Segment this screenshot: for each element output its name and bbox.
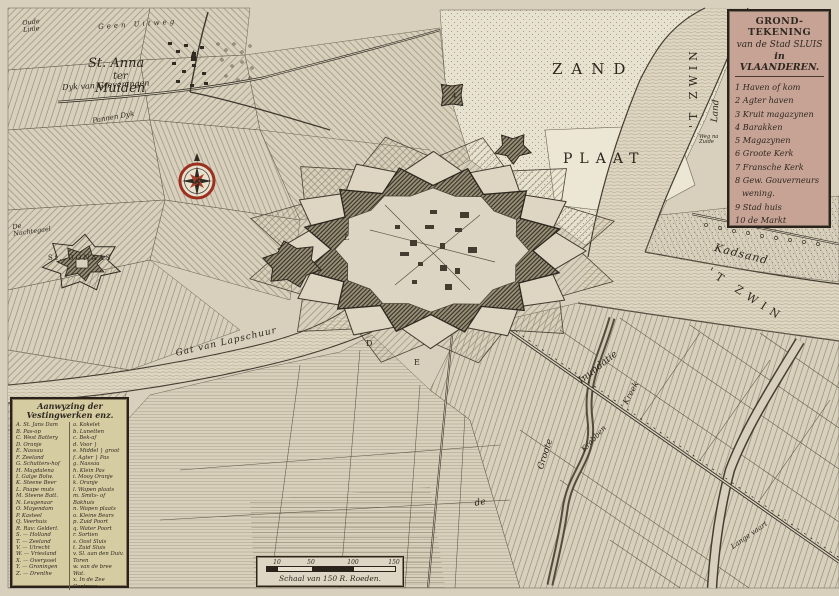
scale-caption: Schaal van 150 R. Roeden.	[263, 574, 397, 583]
legend-right-column: a. Kokeletb. Lunettenc. Bek-afd. Voor }e…	[69, 422, 124, 590]
map-title-line2: van de Stad SLUIS	[735, 40, 824, 50]
legend-entry: x. In de Zee Contresc.	[73, 577, 124, 590]
legend-entry: v. Sl. aan den Duiv. Toren	[73, 551, 124, 564]
legend-entry: Z. — Drenthe	[16, 571, 67, 577]
title-cartouche: GROND-TEKENING van de Stad SLUIS in VLAA…	[727, 9, 831, 228]
cartouche-key-item: 7 Fransche Kerk	[735, 161, 824, 174]
map-sheet: Oude Linie Geen Uitweg St. Anna ter Muid…	[0, 0, 839, 596]
legend-left-column: A. St. Jans DamB. Pas-opC. West BatteryD…	[16, 422, 67, 590]
scale-bar-rule	[266, 566, 396, 572]
cartouche-key-item: 8 Gew. Gouverneurs wening.	[735, 174, 824, 201]
cartouche-key-list: 1 Haven of kom2 Agter haven3 Kruit magaz…	[735, 81, 824, 227]
cartouche-key-item: 9 Stad huis	[735, 201, 824, 214]
cartouche-key-item: 3 Kruit magazynen	[735, 108, 824, 121]
cartouche-key-item: 1 Haven of kom	[735, 81, 824, 94]
cartouche-key-item: 2 Agter haven	[735, 94, 824, 107]
legend-entry: w. van de bree Wat.	[73, 564, 124, 577]
fortifications-legend: Aanwyzing der Vestingwerken enz. A. St. …	[10, 397, 129, 588]
cartouche-key-item: 5 Magazynen	[735, 134, 824, 147]
scale-ticks: 10 50 100 150	[263, 559, 397, 566]
scale-bar: 10 50 100 150 Schaal van 150 R. Roeden.	[256, 556, 404, 587]
scale-tick: 150	[388, 559, 399, 566]
map-title-line3: in VLAANDEREN.	[735, 51, 824, 77]
legend-entry: m. Smits- of Bakhuis	[73, 493, 124, 506]
cartouche-key-item: 10 de Markt	[735, 214, 824, 227]
map-title-line1: GROND-TEKENING	[735, 16, 824, 38]
cartouche-key-item: 4 Barakken	[735, 121, 824, 134]
scale-tick: 100	[347, 559, 358, 566]
legend-header-line2: Vestingwerken enz.	[16, 411, 124, 420]
cartouche-key-item: 6 Groote Kerk	[735, 147, 824, 160]
scale-tick: 50	[307, 559, 315, 566]
scale-tick: 10	[273, 559, 281, 566]
legend-entry: e. Middel } groot	[73, 448, 124, 454]
legend-entry: G. Schutters-hof	[16, 461, 67, 467]
